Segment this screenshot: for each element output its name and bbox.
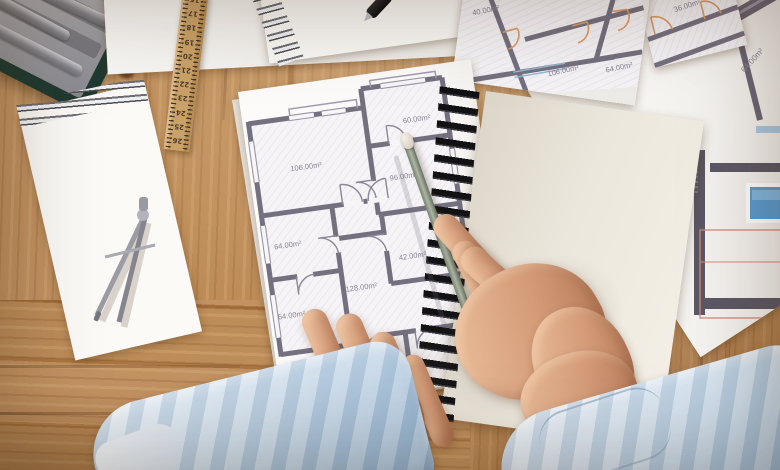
ruler-number: 17 [187,9,198,18]
ruler-number: 22 [179,79,190,88]
ruler-number: 23 [177,93,188,102]
plank-seam [0,365,240,368]
ruler-number: 25 [174,122,185,131]
drafting-compass [75,195,175,345]
desk-scene: 16 17 18 19 20 21 22 23 24 25 26 [0,0,780,470]
ruler-number: 21 [180,65,191,74]
ruler-number: 19 [184,37,195,46]
ruler-number: 16 [189,0,200,4]
ruler-number: 20 [182,51,193,60]
ruler-number: 18 [186,23,197,32]
ruler-number: 24 [175,108,186,117]
ruler-number: 26 [172,136,183,145]
